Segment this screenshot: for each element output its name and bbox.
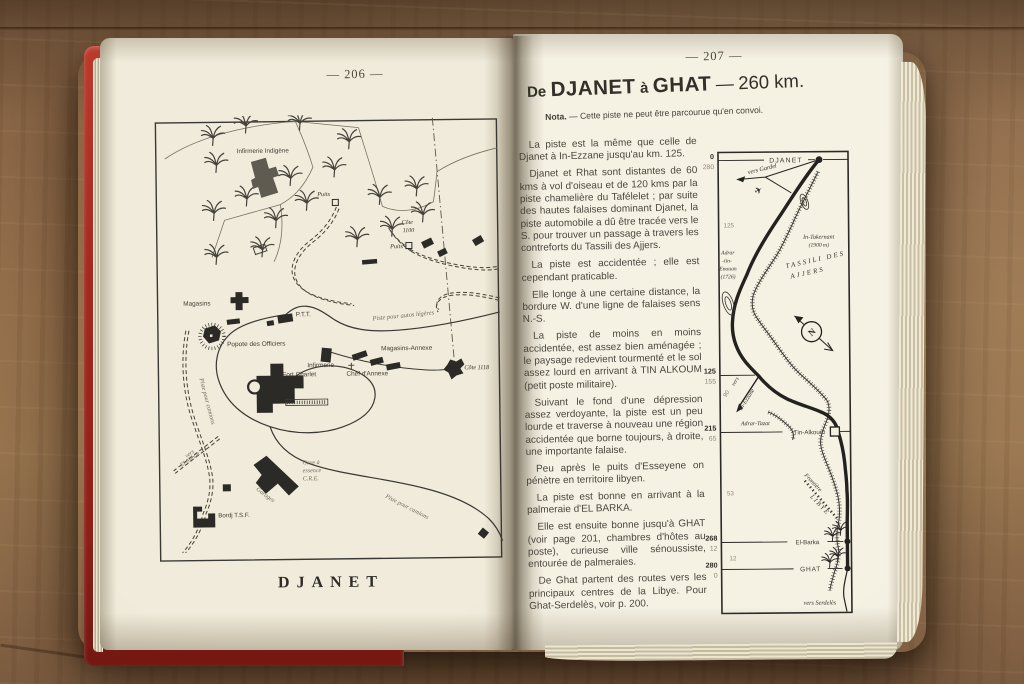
wood-plank-seam: [0, 27, 1024, 31]
infirmerie-indigene-building: [251, 158, 279, 198]
paragraph: La piste de moins en moins accidentée, e…: [523, 327, 702, 393]
label-cote-1118: Côte 1118: [464, 364, 490, 371]
label-bordj-tsf: Bordj T.S.F.: [218, 512, 250, 519]
tin-alkoum-square: [830, 427, 839, 436]
cote-1118-knoll: [443, 358, 464, 379]
route-path: [731, 159, 848, 569]
title-dash: —: [715, 73, 734, 94]
label-adrar-4: (1726): [721, 273, 736, 280]
km-125: 125: [704, 367, 716, 376]
paragraph: Elle est ensuite bonne jusqu'à GHAT (voi…: [527, 518, 706, 571]
airplane-icon: ✈: [753, 184, 765, 197]
ghat-dot: [845, 565, 851, 571]
km-215-rev: 65: [709, 436, 717, 443]
label-el-barka: El-Barka: [795, 539, 819, 546]
label-magasins: Magasins: [183, 300, 210, 307]
paragraph: La piste est accidentée ; elle est cepen…: [521, 256, 700, 285]
label-vers-serdeles: vers Serdelès: [804, 599, 837, 606]
label-tin-alkoum: Tin-Alkoum: [794, 429, 825, 436]
djanet-ghat-strip-map: ✈ N: [696, 144, 860, 625]
label-in-ezzane: In-Ezzane: [738, 388, 757, 413]
paragraph: La piste est la même que celle de Djanet…: [519, 136, 698, 165]
segment-90: 90: [723, 389, 732, 398]
paragraph: Elle longe à une certaine distance, la b…: [522, 286, 701, 327]
parcel-boundaries: [164, 119, 498, 263]
infirmerie-building: [321, 348, 332, 363]
label-cave-2: essence: [303, 468, 322, 474]
km-268: 268: [705, 534, 717, 543]
el-barka-dot: [844, 538, 850, 544]
well-1-square: [332, 199, 338, 205]
title-to: GHAT: [652, 72, 711, 97]
djanet-dot: [816, 156, 823, 163]
label-puits-2: Puits: [389, 243, 403, 250]
label-ptt: P.T.T.: [296, 311, 311, 318]
label-cote-1100-l2: 1100: [403, 228, 415, 234]
book-photo-scene: — 206 —: [0, 0, 1024, 684]
route-description: La piste est la même que celle de Djanet…: [519, 136, 708, 618]
small-building: [223, 484, 231, 491]
label-in-takernant-elev: (1900 m): [809, 242, 830, 249]
label-piste-camions-ouest: Piste pour camions: [197, 376, 216, 426]
km-280: 280: [706, 561, 718, 570]
km-280-rev: 0: [714, 573, 718, 580]
segment-12: 12: [729, 555, 737, 562]
paragraph: La piste est bonne en arrivant à la palm…: [527, 489, 706, 518]
km-215: 215: [704, 424, 716, 433]
paragraph: Suivant le fond d'une dépression assez v…: [524, 393, 703, 459]
label-infirmerie-indigene: Infirmerie Indigène: [237, 147, 290, 155]
title-a: à: [640, 80, 649, 97]
label-piste-camions-sud: Piste pour camions: [383, 492, 430, 521]
label-popote: Popote des Officiers: [227, 341, 286, 349]
label-magasins-annexe: Magasins-Annexe: [381, 345, 433, 353]
djanet-town-map: Infirmerie Indigène Puits Côte 1100 Puit…: [152, 113, 507, 562]
label-cote-1100-l1: Côte: [402, 220, 414, 226]
page-stack-bottom-edge: [545, 642, 897, 661]
map-caption-djanet: DJANET: [155, 572, 500, 593]
title-distance: 260 km.: [738, 70, 805, 93]
label-cave-1: Cave à: [302, 460, 319, 466]
paragraph: De Ghat partent des routes vers les prin…: [529, 572, 708, 613]
label-vers-in-ezzane-vers: vers: [731, 376, 741, 387]
label-chef-annexe: Chef d'Annexe: [346, 370, 388, 378]
magasins-building: [230, 292, 248, 310]
label-in-takernant: In-Takernant: [802, 235, 834, 241]
title-de: De: [527, 83, 547, 101]
label-adrar-3: Enouan: [718, 266, 737, 272]
bottom-right-building: [478, 528, 489, 539]
label-adrar-1: Adrar: [720, 250, 735, 256]
well-2-square: [406, 242, 412, 248]
km-tie-lines: [718, 159, 852, 569]
segment-125: 125: [724, 222, 735, 229]
label-ghat: GHAT: [800, 566, 821, 573]
segment-53: 53: [727, 490, 735, 497]
label-puits-1: Puits: [316, 191, 330, 198]
label-adrar-tazat: Adrar-Tazat: [740, 421, 770, 427]
km-column: 0 280 125 155 215 65 268 12 280 0: [702, 152, 718, 580]
label-piste-autos: Piste pour autos légères: [371, 309, 435, 322]
label-infirmerie: Infirmerie: [307, 362, 334, 369]
route-continuation-serdeles: [843, 568, 848, 611]
bordj-tsf-building: [193, 506, 215, 527]
north-arrow-icon: N: [794, 316, 832, 351]
paragraph: Djanet et Rhat sont distantes de 60 kms …: [519, 165, 699, 255]
page-stack-right-edge: [897, 62, 926, 642]
outlying-buildings: [253, 235, 484, 266]
roads: [216, 304, 503, 545]
km-268-rev: 12: [710, 546, 718, 553]
dashed-tracks: [170, 205, 504, 553]
label-fort-charlet: Fort Charlet: [282, 371, 316, 378]
label-cave-3: C.R.E.: [303, 476, 319, 482]
km-0-rev: 280: [703, 164, 715, 171]
paragraph: Peu après le puits d'Esseyene on pénètre…: [526, 460, 705, 489]
title-from: DJANET: [550, 75, 636, 101]
label-adrar-2: -tin-: [722, 258, 732, 264]
km-125-rev: 155: [705, 379, 717, 386]
popote-fortified-post: [200, 324, 224, 348]
km-0: 0: [710, 152, 714, 161]
nota-label: Nota.: [545, 111, 567, 122]
